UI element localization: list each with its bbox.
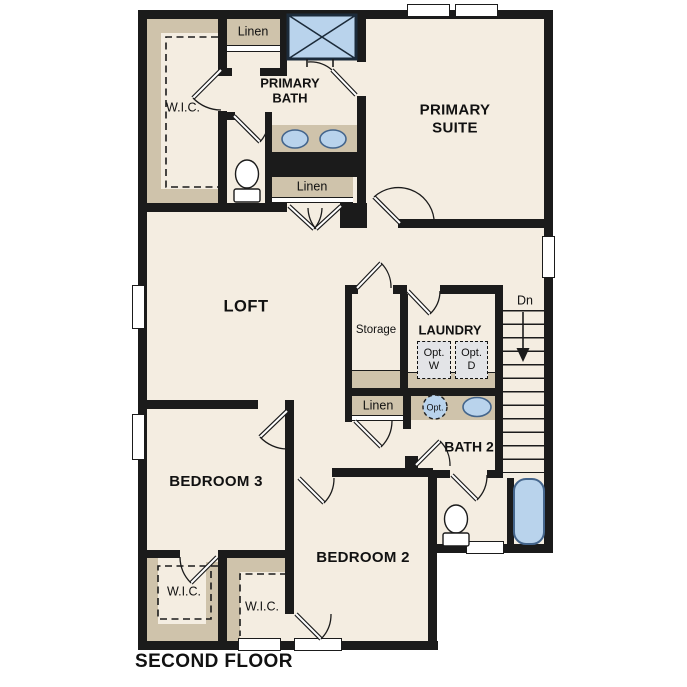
door-storage xyxy=(357,263,391,288)
door-primary-suite xyxy=(374,188,434,223)
room-label-linen-bath: Linen xyxy=(297,180,328,195)
room-label-linen-upper: Linen xyxy=(238,25,269,40)
room-label-bedroom2: BEDROOM 2 xyxy=(316,549,410,567)
room-label-loft: LOFT xyxy=(223,297,268,316)
room-label-bedroom3: BEDROOM 3 xyxy=(169,473,263,491)
door-primary-bath-double xyxy=(289,206,341,229)
room-label-primary-bath: PRIMARY BATH xyxy=(260,76,319,107)
room-label-primary-suite: PRIMARY SUITE xyxy=(420,101,491,136)
room-label-bath2: BATH 2 xyxy=(444,439,494,456)
optional-sink-icon: Opt. xyxy=(423,395,447,419)
room-label-wic-bedroom2: W.I.C. xyxy=(245,600,279,615)
door-laundry xyxy=(408,291,440,314)
door-wic-bedroom3 xyxy=(180,557,217,583)
page-title: SECOND FLOOR xyxy=(135,651,293,673)
shower-icon xyxy=(288,15,356,67)
door-bedroom2 xyxy=(299,478,334,503)
sink-icon xyxy=(282,130,308,148)
sink-icon xyxy=(463,398,491,417)
room-label-wic-bedroom3: W.I.C. xyxy=(167,585,201,600)
room-label-storage: Storage xyxy=(356,324,396,338)
door-primary-toilet xyxy=(234,116,269,142)
door-bedroom3 xyxy=(260,411,287,449)
sink-icon xyxy=(320,130,346,148)
door-linen-hall xyxy=(355,421,392,447)
stairs-down-label: Dn xyxy=(517,294,533,309)
door-bath2-compartment xyxy=(452,475,487,500)
optional-sink-label: Opt. xyxy=(426,403,443,413)
toilet-icon xyxy=(234,160,260,202)
toilet-icon xyxy=(443,505,469,546)
floor-plan: Opt. W Opt. D xyxy=(0,0,687,687)
room-label-linen-hall: Linen xyxy=(363,399,394,414)
fixtures-layer: Opt. xyxy=(0,0,687,687)
stairs-down-arrow xyxy=(517,312,530,362)
door-wic-bedroom2 xyxy=(296,614,331,639)
room-label-wic-primary: W.I.C. xyxy=(166,101,200,116)
bathtub-icon xyxy=(514,479,544,544)
room-label-laundry: LAUNDRY xyxy=(418,322,481,337)
